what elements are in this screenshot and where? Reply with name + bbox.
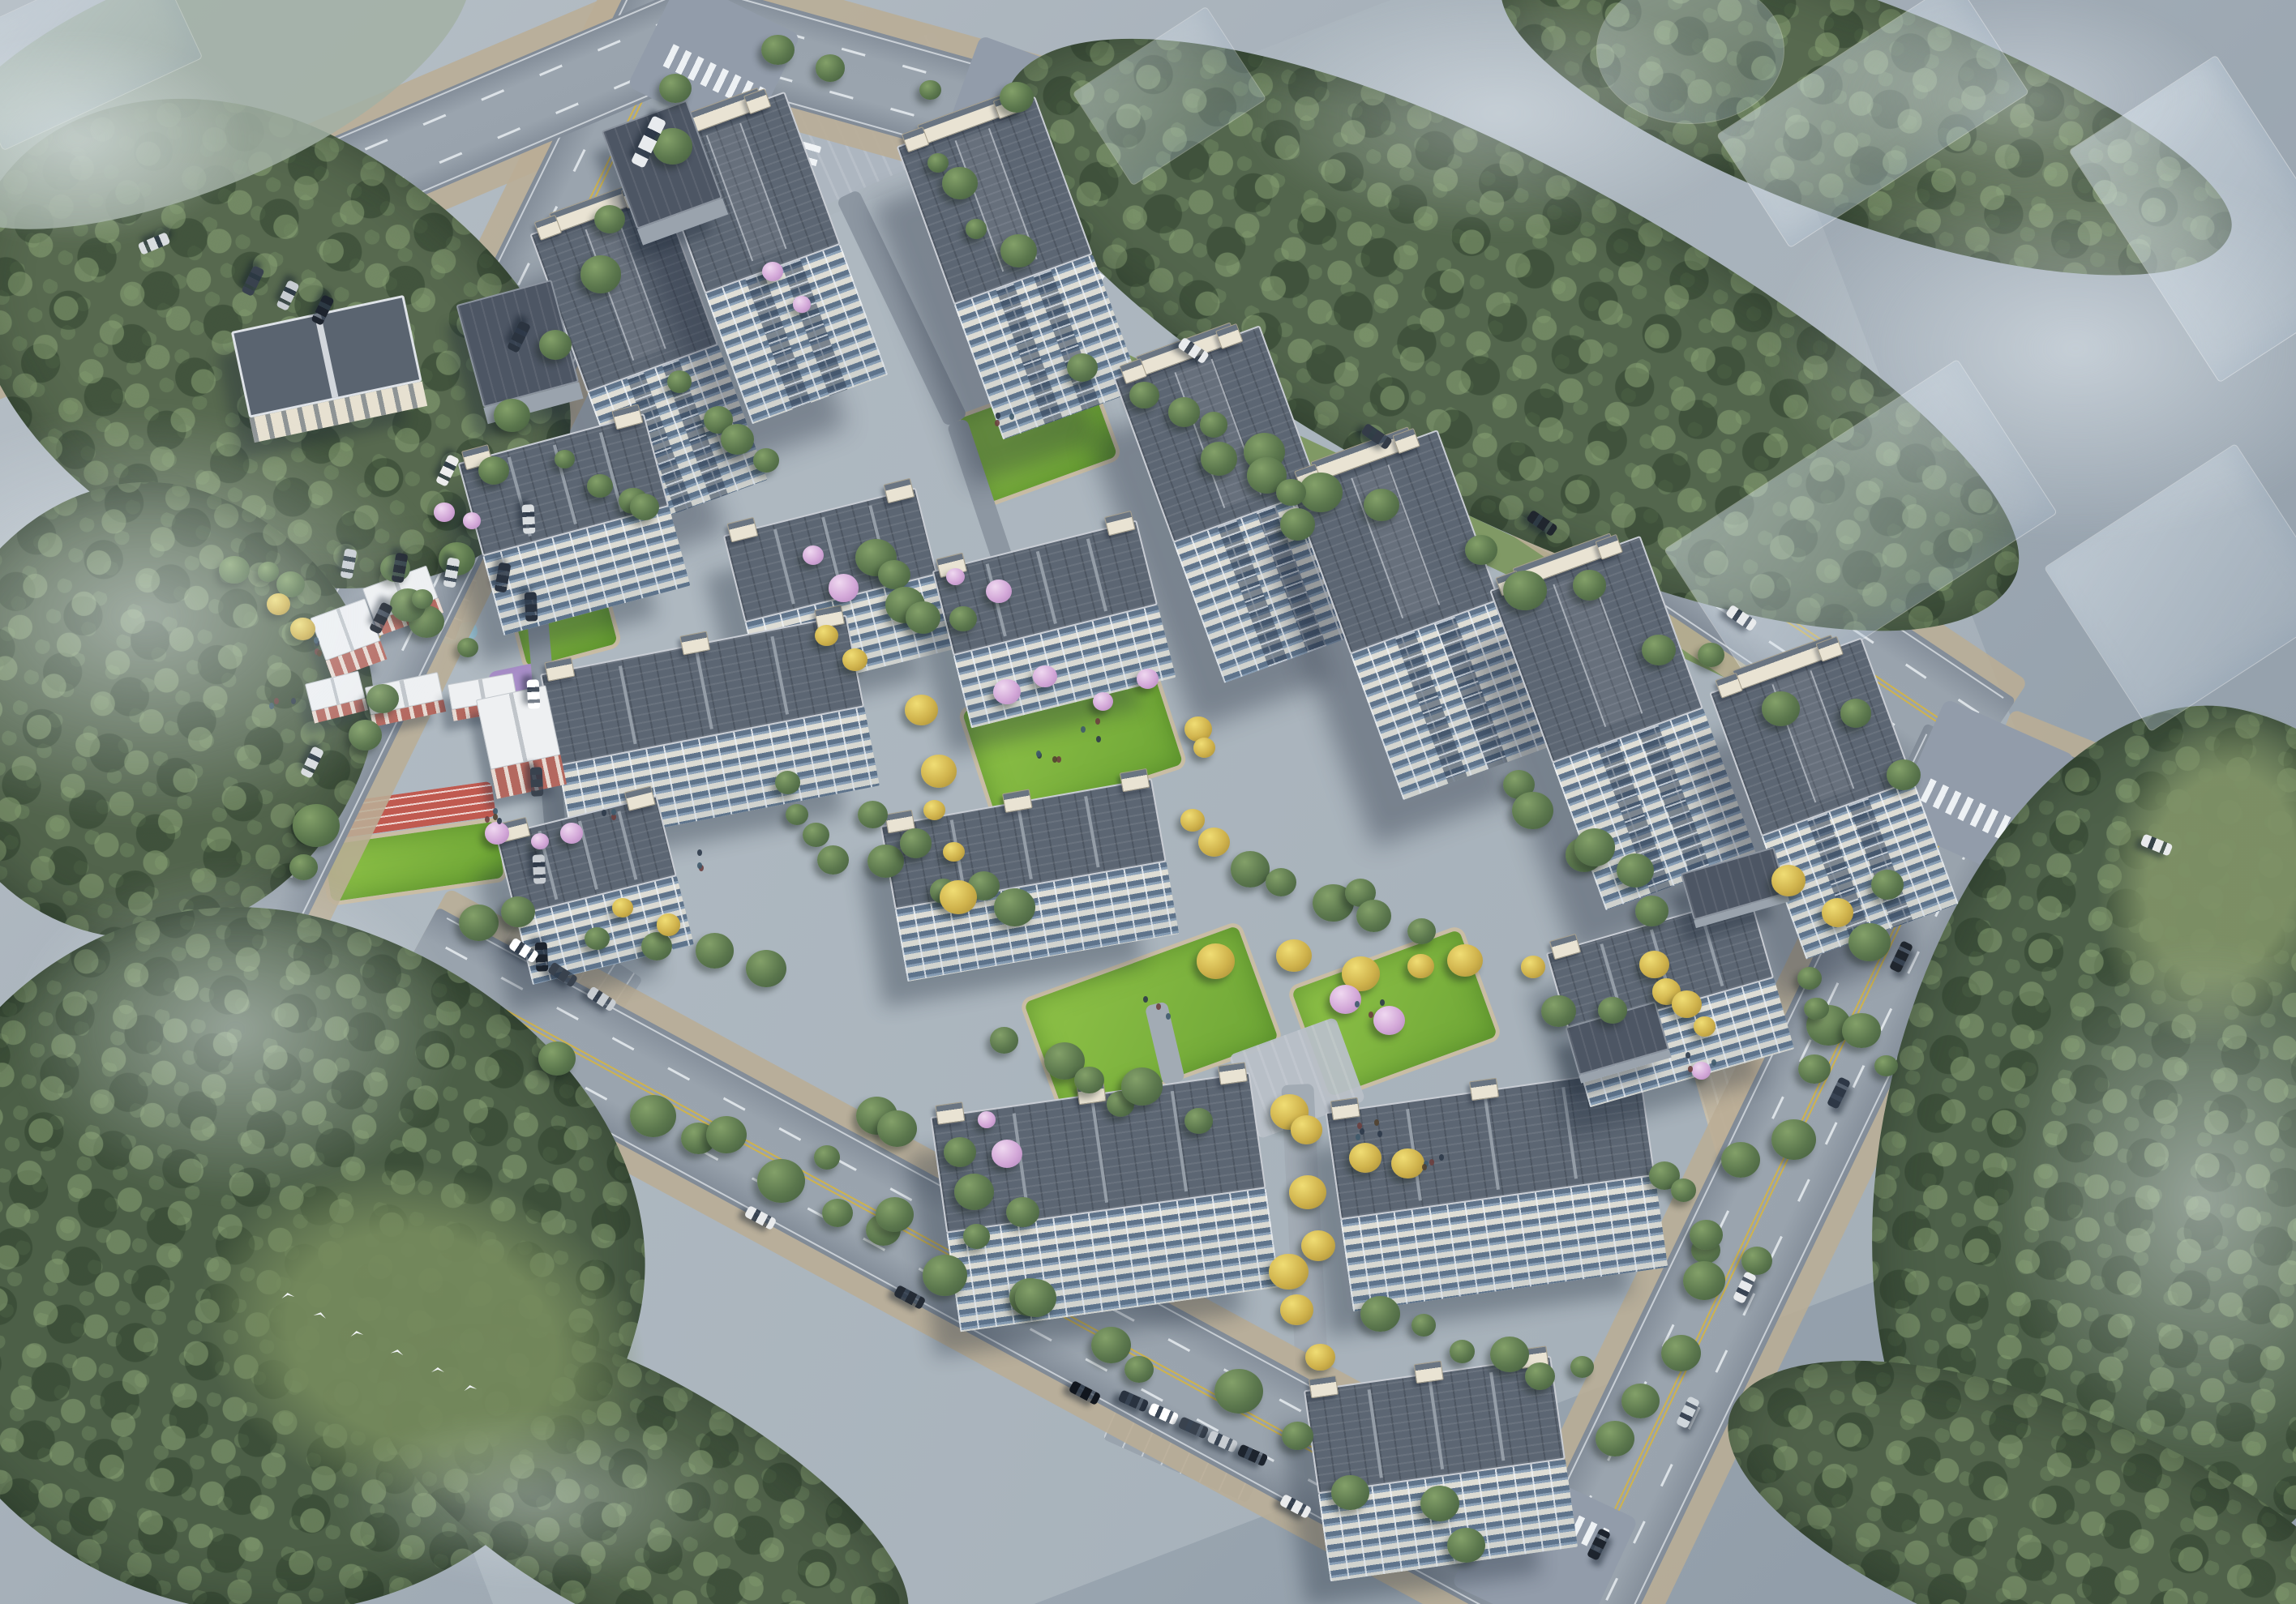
tree-yellow bbox=[657, 913, 681, 935]
tree-green bbox=[1525, 1362, 1555, 1390]
person bbox=[291, 698, 296, 704]
tree-yellow bbox=[943, 842, 965, 862]
person bbox=[1356, 1134, 1360, 1140]
tree-green bbox=[1874, 1055, 1898, 1076]
person bbox=[497, 818, 502, 824]
roof-ridge bbox=[1084, 796, 1099, 867]
person bbox=[611, 809, 616, 815]
roof-core bbox=[1772, 670, 1854, 802]
roof-ridge bbox=[1091, 1102, 1108, 1202]
tree-green bbox=[1006, 1197, 1039, 1228]
tree-yellow bbox=[905, 695, 939, 725]
tree-green bbox=[349, 720, 382, 751]
tree-green bbox=[412, 589, 433, 609]
person bbox=[1380, 999, 1385, 1006]
person bbox=[1422, 1164, 1427, 1170]
tree-green bbox=[1420, 1486, 1459, 1521]
tree-green bbox=[786, 804, 809, 825]
tree-blossom bbox=[1033, 665, 1057, 687]
tree-green bbox=[1617, 853, 1654, 888]
tree-blossom bbox=[793, 296, 811, 313]
tree-green bbox=[1842, 1013, 1881, 1049]
person bbox=[1096, 736, 1101, 742]
tree-blossom bbox=[531, 833, 549, 850]
tree-yellow bbox=[1198, 828, 1230, 857]
tree-green bbox=[966, 219, 987, 238]
tree-green bbox=[538, 1042, 576, 1076]
tree-green bbox=[1465, 535, 1497, 565]
slab-bottom-west-penthouse-2 bbox=[1218, 1062, 1248, 1084]
tree-yellow bbox=[842, 648, 867, 672]
tree-green bbox=[990, 1027, 1019, 1054]
tree-green bbox=[1411, 1314, 1436, 1337]
tree-blossom bbox=[1093, 692, 1114, 712]
tree-green bbox=[1360, 1296, 1400, 1332]
tree-green bbox=[1356, 900, 1391, 932]
tree-green bbox=[1598, 997, 1627, 1024]
roof-ridge bbox=[1086, 539, 1107, 612]
tree-yellow bbox=[1521, 956, 1545, 978]
tree-green bbox=[1168, 397, 1201, 426]
roof-ridge bbox=[619, 665, 637, 743]
tree-blossom bbox=[829, 574, 859, 602]
tree-green bbox=[555, 450, 574, 468]
person bbox=[1439, 1154, 1444, 1161]
slab-bottom-tip bbox=[1304, 1356, 1578, 1582]
tree-green bbox=[1596, 1421, 1634, 1456]
person bbox=[1009, 413, 1014, 420]
tree-yellow bbox=[612, 898, 633, 917]
tree-yellow bbox=[1694, 1016, 1716, 1036]
slab-bottom-east-penthouse-1 bbox=[1469, 1078, 1499, 1101]
tree-yellow bbox=[1391, 1148, 1424, 1178]
tree-yellow bbox=[267, 593, 290, 615]
tree-green bbox=[1067, 353, 1098, 382]
person bbox=[602, 810, 606, 816]
tree-green bbox=[1642, 635, 1676, 666]
tree-yellow bbox=[1672, 990, 1702, 1018]
person bbox=[1429, 1159, 1434, 1166]
slab-bottom-tip-penthouse-1 bbox=[1414, 1361, 1444, 1384]
tree-green bbox=[757, 1159, 805, 1203]
person bbox=[493, 814, 498, 820]
tree-green bbox=[366, 684, 399, 713]
roof-ridge bbox=[1561, 1087, 1578, 1179]
tree-green bbox=[630, 1095, 676, 1137]
person bbox=[1052, 756, 1057, 763]
roof-ridge bbox=[1036, 551, 1057, 624]
roof-ridge bbox=[770, 635, 789, 714]
tree-green bbox=[696, 933, 734, 969]
tree-green bbox=[1840, 699, 1872, 727]
tree-green bbox=[817, 845, 849, 875]
tree-green bbox=[1871, 870, 1904, 899]
person bbox=[995, 420, 1000, 426]
tree-green bbox=[501, 896, 535, 927]
tree-green bbox=[803, 823, 829, 847]
roof-core bbox=[1351, 464, 1440, 618]
roof-ridge bbox=[1017, 807, 1032, 879]
ghost-building-d bbox=[2045, 444, 2296, 731]
tree-green bbox=[923, 1255, 967, 1296]
tree-blossom bbox=[1692, 1062, 1711, 1080]
tree-green bbox=[994, 888, 1035, 926]
tree-green bbox=[478, 456, 509, 485]
tree-yellow bbox=[921, 755, 957, 787]
tree-green bbox=[949, 606, 977, 631]
tree-green bbox=[1671, 1178, 1697, 1202]
tree-green bbox=[1124, 1356, 1154, 1383]
person bbox=[1686, 1052, 1690, 1059]
tree-yellow bbox=[1822, 898, 1854, 927]
tree-green bbox=[1661, 1335, 1701, 1371]
roof-ridge bbox=[617, 811, 637, 879]
parked-car bbox=[529, 767, 543, 797]
tree-yellow bbox=[815, 625, 837, 646]
tree-green bbox=[459, 905, 499, 941]
tree-green bbox=[1848, 923, 1891, 962]
tree-green bbox=[1201, 442, 1237, 476]
person bbox=[317, 650, 322, 657]
tree-green bbox=[667, 370, 692, 393]
tree-blossom bbox=[992, 1140, 1022, 1168]
person bbox=[1688, 1066, 1693, 1072]
tree-yellow bbox=[1447, 944, 1483, 977]
parked-car bbox=[525, 592, 538, 622]
person bbox=[274, 698, 279, 704]
tree-yellow bbox=[1289, 1175, 1326, 1210]
tree-green bbox=[954, 1174, 994, 1210]
person bbox=[1374, 1119, 1379, 1126]
tree-yellow bbox=[923, 800, 945, 820]
tree-green bbox=[1280, 508, 1315, 540]
person bbox=[697, 862, 702, 869]
tree-blossom bbox=[803, 545, 824, 565]
tree-blossom bbox=[485, 822, 510, 845]
person bbox=[1369, 1012, 1373, 1018]
tree-blossom bbox=[762, 262, 783, 281]
tree-green bbox=[942, 167, 977, 199]
tree-green bbox=[1490, 1337, 1529, 1372]
tree-green bbox=[927, 153, 949, 173]
tree-yellow bbox=[1280, 1294, 1313, 1325]
slab-center-south-penthouse-2 bbox=[1120, 768, 1150, 792]
tree-green bbox=[822, 1199, 853, 1227]
tree-green bbox=[1184, 1108, 1213, 1134]
person bbox=[1357, 1123, 1362, 1129]
person bbox=[1081, 726, 1086, 733]
tree-green bbox=[867, 845, 904, 878]
tree-green bbox=[1762, 691, 1800, 726]
tree-yellow bbox=[1771, 865, 1806, 896]
person bbox=[1156, 1003, 1161, 1010]
person bbox=[1377, 1131, 1382, 1137]
person bbox=[314, 637, 319, 644]
person bbox=[269, 703, 274, 709]
slab-center-south-penthouse-1 bbox=[1002, 789, 1033, 813]
tree-green bbox=[816, 54, 845, 82]
tree-green bbox=[706, 1116, 747, 1153]
person bbox=[1355, 1001, 1360, 1007]
tree-green bbox=[1331, 1475, 1369, 1510]
tree-green bbox=[539, 330, 572, 360]
roof-ridge bbox=[1429, 1380, 1444, 1469]
tree-green bbox=[1503, 571, 1547, 611]
tree-green bbox=[1621, 1384, 1660, 1418]
tree-blossom bbox=[560, 823, 583, 844]
tree-green bbox=[1570, 1356, 1595, 1378]
tree-yellow bbox=[1349, 1143, 1381, 1173]
tree-green bbox=[1000, 82, 1034, 113]
tree-green bbox=[775, 771, 800, 794]
person bbox=[697, 849, 702, 856]
tree-green bbox=[1015, 1279, 1056, 1317]
roof-ridge bbox=[1170, 1091, 1187, 1191]
tree-green bbox=[721, 424, 754, 455]
tree-green bbox=[1121, 1067, 1163, 1106]
roof-ridge bbox=[1484, 1097, 1500, 1190]
tree-green bbox=[1721, 1142, 1761, 1178]
tree-yellow bbox=[1276, 939, 1312, 973]
tree-green bbox=[906, 601, 941, 634]
tree-green bbox=[876, 1197, 914, 1232]
tree-green bbox=[814, 1145, 841, 1170]
tree-green bbox=[944, 1137, 976, 1167]
tree-green bbox=[1447, 1528, 1485, 1563]
tree-green bbox=[1771, 1119, 1815, 1160]
tree-green bbox=[1200, 412, 1227, 438]
tree-green bbox=[1690, 1220, 1723, 1250]
person bbox=[1143, 996, 1148, 1003]
tree-green bbox=[1214, 1369, 1263, 1414]
tree-green bbox=[1804, 998, 1828, 1020]
person bbox=[996, 413, 1000, 419]
parked-car bbox=[527, 679, 541, 709]
tree-blossom bbox=[993, 679, 1021, 704]
tree-green bbox=[1231, 851, 1270, 888]
roof-ridge bbox=[773, 528, 795, 603]
tree-green bbox=[878, 560, 910, 590]
tree-green bbox=[858, 801, 889, 829]
slab-bottom-west-penthouse-0 bbox=[935, 1101, 965, 1124]
tree-green bbox=[1683, 1261, 1725, 1300]
tree-green bbox=[587, 474, 613, 498]
parked-car bbox=[522, 504, 536, 534]
slab-bottom-tip-penthouse-0 bbox=[1309, 1375, 1339, 1398]
parked-car bbox=[532, 854, 546, 884]
tree-green bbox=[1407, 918, 1436, 944]
person bbox=[1711, 1059, 1716, 1066]
tree-green bbox=[1000, 234, 1037, 267]
tree-yellow bbox=[1197, 943, 1235, 979]
tree-blossom bbox=[986, 580, 1012, 604]
tree-green bbox=[293, 804, 340, 847]
tree-green bbox=[1797, 967, 1822, 990]
person bbox=[485, 816, 490, 823]
tree-green bbox=[1698, 643, 1724, 667]
tree-yellow bbox=[1291, 1115, 1322, 1144]
roof-ridge bbox=[1368, 1389, 1383, 1478]
tree-green bbox=[1541, 995, 1575, 1027]
tree-green bbox=[761, 35, 795, 65]
tree-yellow bbox=[1269, 1254, 1309, 1290]
aerial-site-plan-rendering bbox=[0, 0, 2296, 1604]
tree-green bbox=[746, 950, 786, 987]
tree-green bbox=[900, 828, 932, 858]
tree-green bbox=[219, 556, 250, 584]
roof-ridge bbox=[694, 650, 713, 729]
tree-yellow bbox=[1407, 954, 1434, 978]
person bbox=[1166, 1013, 1171, 1020]
tree-yellow bbox=[940, 880, 977, 914]
tree-green bbox=[1450, 1340, 1476, 1363]
tree-green bbox=[457, 638, 479, 657]
person bbox=[1056, 756, 1061, 763]
tree-green bbox=[1074, 1067, 1104, 1094]
person bbox=[1360, 1128, 1364, 1135]
roof-ridge bbox=[1489, 1371, 1505, 1460]
tree-green bbox=[877, 1110, 917, 1147]
tree-green bbox=[1887, 759, 1921, 790]
slab-bottom-east-penthouse-0 bbox=[1330, 1097, 1360, 1120]
tree-green bbox=[1635, 896, 1668, 926]
tree-green bbox=[258, 562, 280, 581]
tree-green bbox=[1573, 570, 1606, 601]
person bbox=[1036, 751, 1041, 757]
tree-green bbox=[753, 448, 779, 473]
person bbox=[1095, 718, 1100, 725]
